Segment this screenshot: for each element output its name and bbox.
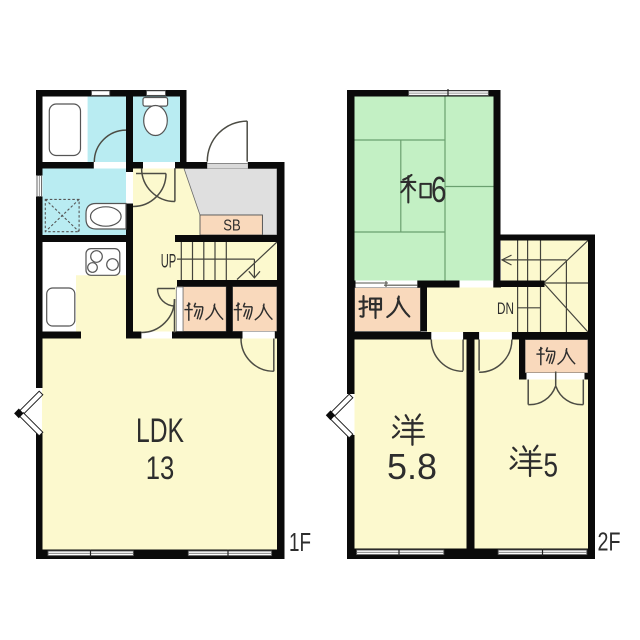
svg-text:2F: 2F bbox=[598, 527, 621, 557]
svg-text:LDK: LDK bbox=[136, 412, 184, 450]
svg-text:SB: SB bbox=[223, 218, 241, 235]
svg-text:5: 5 bbox=[544, 447, 559, 484]
svg-text:DN: DN bbox=[497, 299, 514, 318]
svg-text:5.8: 5.8 bbox=[387, 446, 437, 487]
svg-text:6: 6 bbox=[431, 169, 447, 210]
svg-text:1F: 1F bbox=[289, 527, 311, 557]
svg-text:UP: UP bbox=[161, 252, 177, 273]
svg-text:13: 13 bbox=[146, 450, 175, 486]
